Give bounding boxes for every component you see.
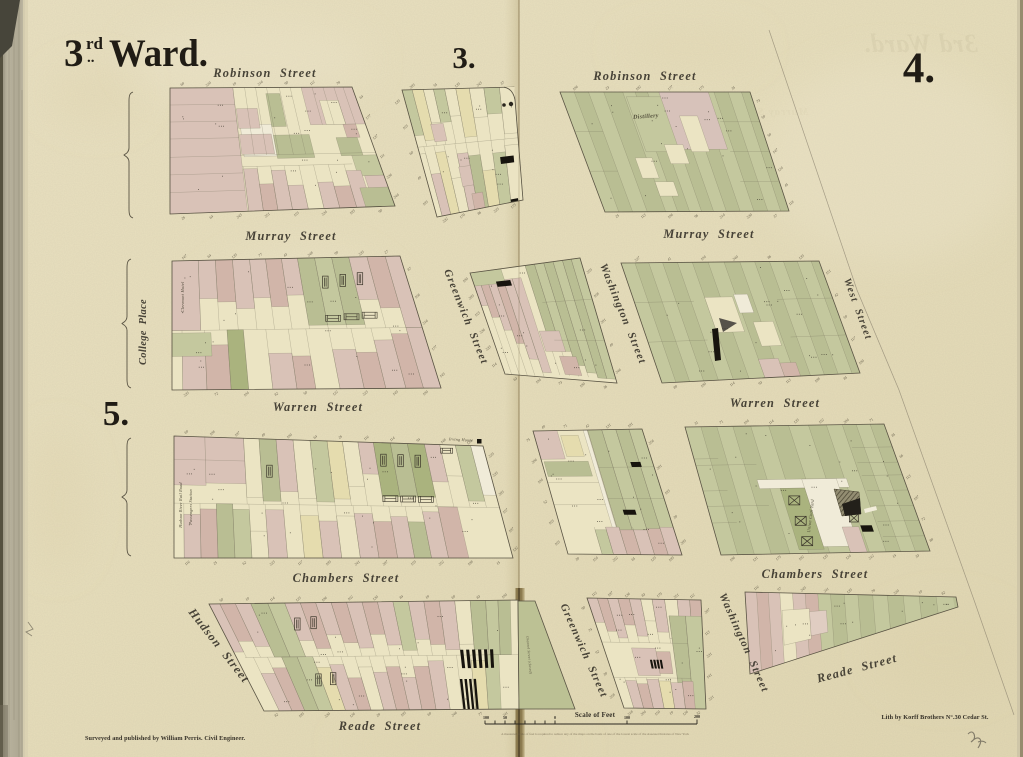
- svg-text:4.: 4.: [903, 45, 935, 92]
- svg-text:Scale of Feet: Scale of Feet: [575, 711, 616, 719]
- svg-text:Hudson River Rail Road: Hudson River Rail Road: [178, 482, 183, 529]
- svg-text:Reade Street: Reade Street: [338, 719, 422, 733]
- svg-text:Warren Street: Warren Street: [730, 396, 820, 410]
- svg-text:3.: 3.: [452, 40, 475, 75]
- svg-text:200: 200: [694, 714, 700, 719]
- svg-text:Ward.: Ward.: [109, 32, 208, 75]
- svg-text:Clermont Hotel: Clermont Hotel: [180, 281, 185, 312]
- svg-text:100: 100: [624, 715, 630, 720]
- svg-text:3: 3: [64, 32, 84, 75]
- svg-text:Robinson Street: Robinson Street: [592, 69, 696, 83]
- svg-text:Murray Street: Murray Street: [662, 227, 754, 241]
- svg-text:Chambers Street: Chambers Street: [762, 567, 869, 581]
- svg-text:A measured scale of feet is re: A measured scale of feet is required to …: [501, 732, 689, 736]
- svg-text:50: 50: [503, 715, 507, 720]
- svg-text:Robinson Street: Robinson Street: [212, 66, 316, 80]
- svg-text:5.: 5.: [103, 394, 129, 433]
- svg-text:Surveyed and published by Will: Surveyed and published by William Perris…: [85, 735, 245, 742]
- svg-text:100: 100: [483, 715, 489, 720]
- svg-text:College Place: College Place: [138, 299, 149, 365]
- svg-text:Passengers Station: Passengers Station: [188, 489, 193, 526]
- svg-text:Murray Street: Murray Street: [244, 229, 336, 243]
- svg-text:Warren Street: Warren Street: [273, 400, 363, 414]
- svg-text:Lith by Korff Brothers N°.30 C: Lith by Korff Brothers N°.30 Cedar St.: [881, 714, 988, 721]
- svg-text:0: 0: [554, 715, 556, 720]
- svg-text:..: ..: [87, 50, 95, 66]
- svg-text:Chambers Street: Chambers Street: [293, 571, 400, 585]
